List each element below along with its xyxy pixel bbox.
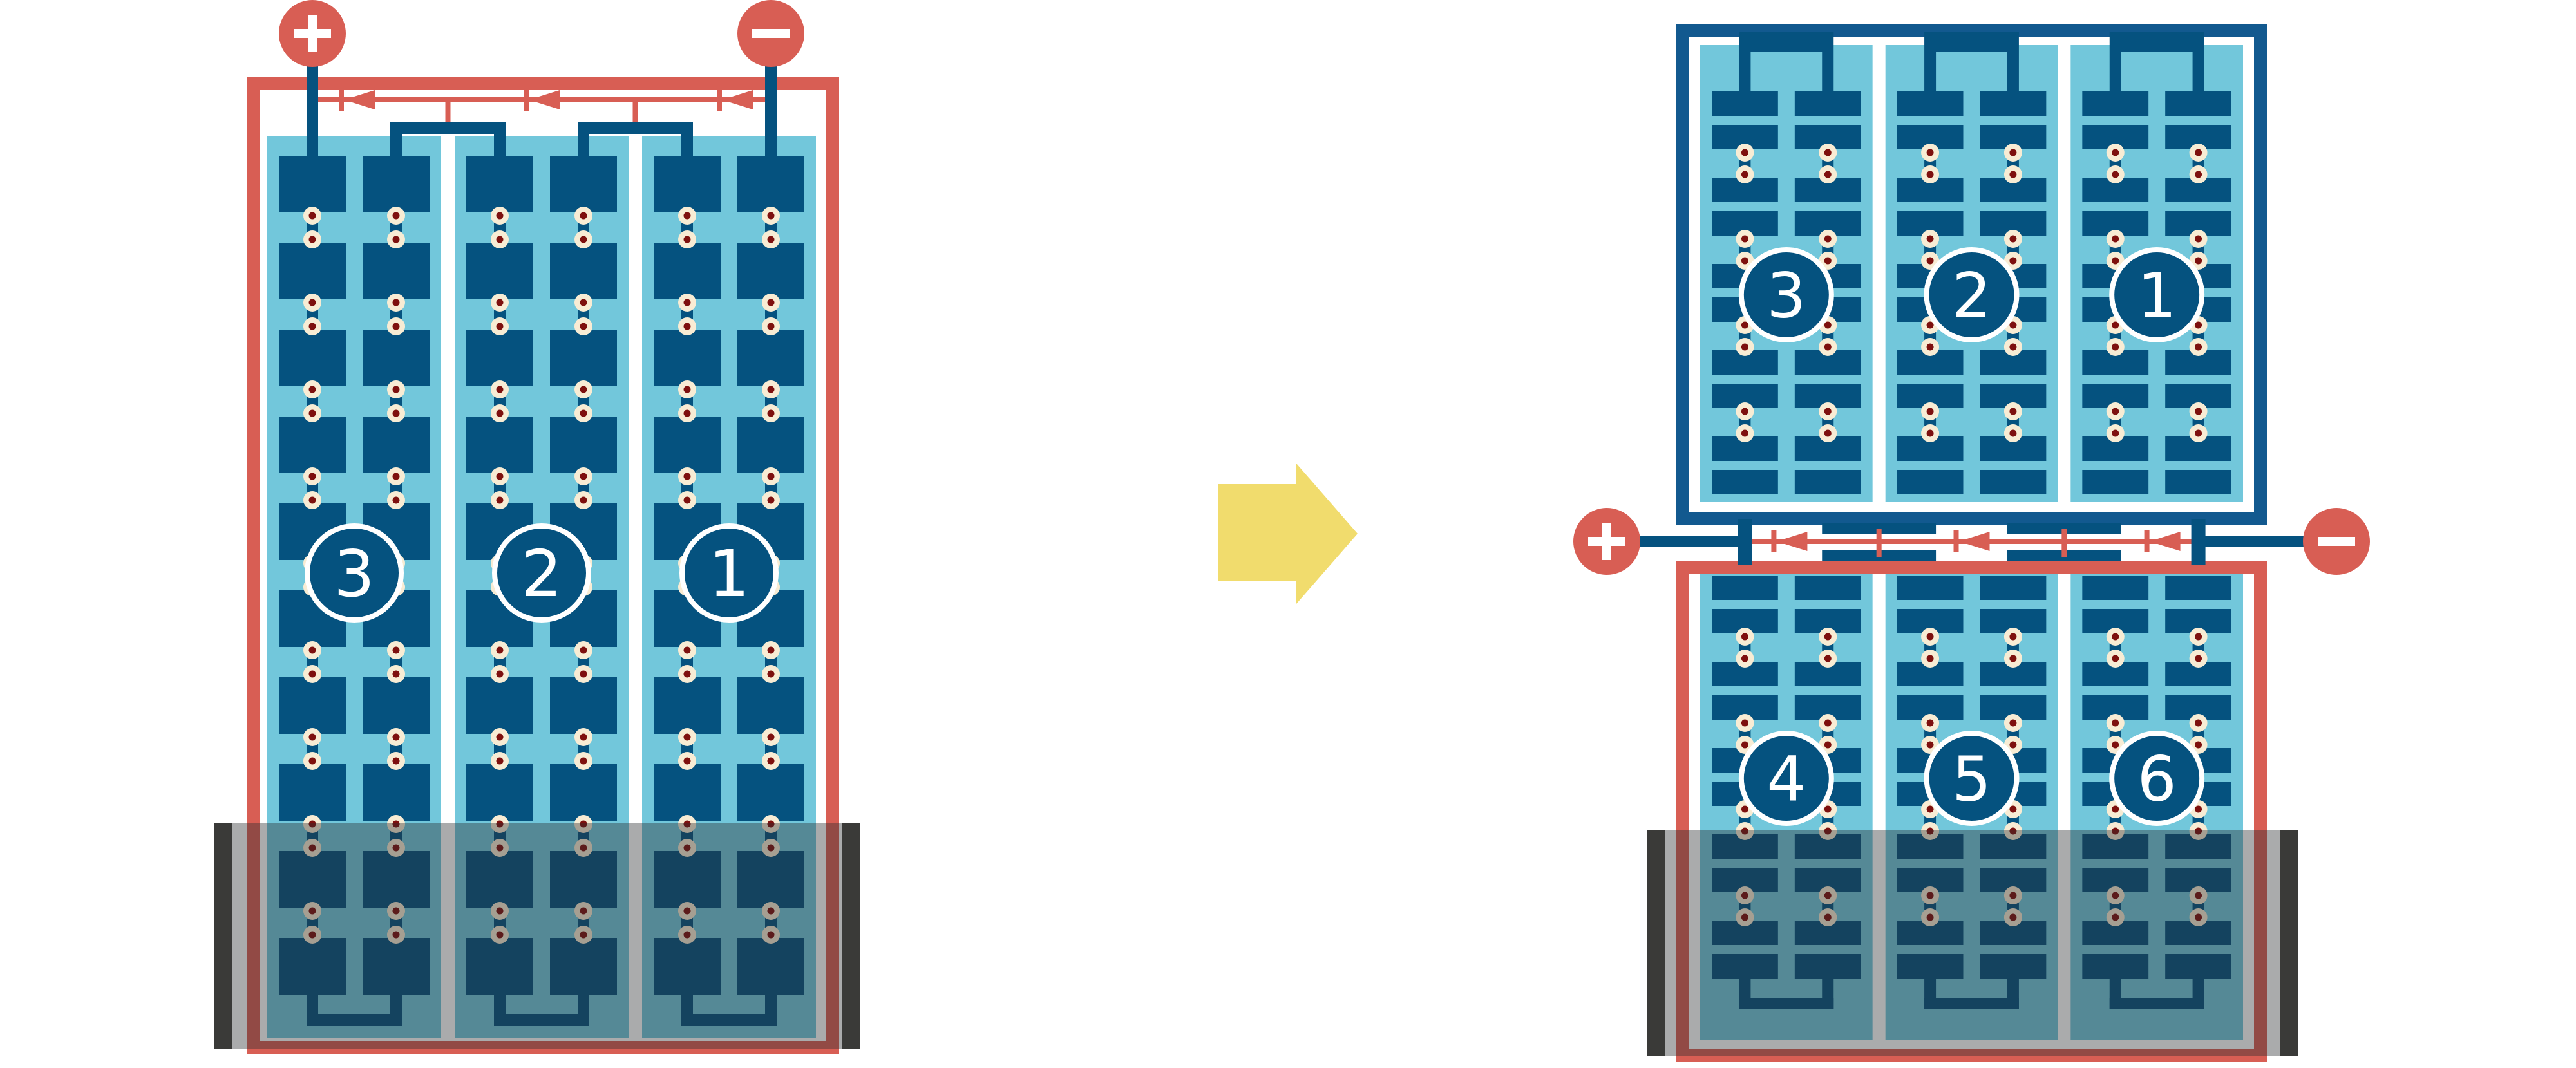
solder-dot-inner — [497, 734, 504, 741]
solder-dot-icon — [387, 467, 405, 485]
solder-dot-inner — [2112, 344, 2119, 351]
solder-dot-inner — [2112, 655, 2119, 662]
jumper-bar — [390, 122, 506, 134]
solder-dot-icon — [1921, 402, 1939, 420]
transform-arrow — [1218, 464, 1358, 604]
solder-dot-icon — [574, 641, 592, 659]
solar-cell — [654, 243, 721, 299]
solder-dot-inner — [2009, 430, 2016, 437]
solder-dot-inner — [309, 236, 316, 243]
bypass-diode-icon — [1771, 530, 1807, 552]
solder-dot-icon — [678, 728, 696, 746]
positive-terminal — [1573, 508, 1640, 575]
negative-terminal — [737, 0, 804, 67]
solder-dot-inner — [1824, 322, 1832, 329]
solder-dot-icon — [1819, 628, 1837, 646]
solder-dot-inner — [1927, 720, 1934, 727]
solder-dot-icon — [1921, 424, 1939, 442]
solder-dot-inner — [2195, 171, 2202, 178]
solder-dot-icon — [2004, 424, 2022, 442]
solder-dot-icon — [491, 380, 509, 398]
solder-dot-icon — [2107, 144, 2125, 162]
solar-cell — [363, 330, 430, 386]
solder-dot-inner — [1741, 149, 1748, 156]
solar-cell — [363, 764, 430, 821]
solar-cell — [550, 764, 617, 821]
solder-dot-icon — [2004, 628, 2022, 646]
solder-dot-icon — [387, 404, 405, 422]
diode-arrow — [1776, 532, 1807, 551]
string-label: 3 — [334, 536, 375, 612]
solder-dot-inner — [684, 758, 691, 765]
jumper-bar — [1739, 32, 1833, 52]
solder-dot-icon — [2107, 230, 2125, 248]
jumper-leg — [2110, 52, 2121, 91]
solder-dot-inner — [497, 212, 504, 220]
shade-tint — [1665, 830, 2280, 1056]
jumper-leg — [494, 134, 506, 157]
solder-dot-icon — [1819, 714, 1837, 732]
solder-dot-inner — [1741, 236, 1748, 243]
diode-arrow — [2150, 532, 2181, 551]
solder-dot-icon — [2004, 338, 2022, 356]
solar-cell — [737, 677, 804, 734]
solder-dot-icon — [574, 230, 592, 248]
string-label: 1 — [708, 536, 750, 612]
solar-cell — [654, 330, 721, 386]
solder-dot-inner — [768, 758, 775, 765]
positive-terminal — [279, 0, 346, 67]
solder-dot-inner — [1824, 236, 1832, 243]
minus-bar — [2318, 537, 2355, 546]
solder-dot-icon — [2190, 338, 2208, 356]
solar-module-wiring-diagram: 321321456 — [0, 0, 2576, 1068]
solder-dot-inner — [393, 236, 400, 243]
solder-dot-icon — [762, 230, 780, 248]
solder-dot-inner — [2009, 408, 2016, 415]
solder-dot-inner — [2009, 742, 2016, 749]
solder-dot-icon — [762, 665, 780, 683]
solar-cell — [550, 677, 617, 734]
solder-dot-inner — [309, 647, 316, 654]
solder-dot-icon — [574, 380, 592, 398]
solder-dot-icon — [387, 752, 405, 770]
solar-cell — [654, 417, 721, 473]
solder-dot-inner — [580, 410, 587, 417]
solder-dot-inner — [393, 497, 400, 504]
solder-dot-icon — [2107, 424, 2125, 442]
string-label-circle: 2 — [495, 526, 589, 620]
solder-dot-icon — [1819, 424, 1837, 442]
solder-dot-inner — [768, 299, 775, 306]
solar-cell-bar — [2165, 91, 2231, 116]
solder-dot-icon — [2107, 165, 2125, 183]
diode-cathode-bar — [1771, 530, 1776, 552]
solder-dot-icon — [1736, 628, 1754, 646]
solder-dot-inner — [1927, 655, 1934, 662]
solder-dot-inner — [2112, 236, 2119, 243]
plus-v-bar — [308, 15, 317, 52]
bypass-diode-icon — [717, 89, 753, 111]
solder-dot-icon — [2004, 650, 2022, 668]
string-label: 3 — [1766, 260, 1806, 332]
solder-dot-inner — [1824, 171, 1832, 178]
solder-dot-icon — [2107, 338, 2125, 356]
shade-end-bar — [2280, 830, 2298, 1056]
diode-tap-wire — [1877, 529, 1882, 557]
solder-dot-icon — [2004, 402, 2022, 420]
solder-dot-inner — [2195, 258, 2202, 265]
solder-dot-icon — [762, 294, 780, 312]
solder-dot-inner — [768, 734, 775, 741]
solder-dot-icon — [678, 207, 696, 225]
solar-cell-bar — [1897, 576, 1964, 600]
solder-dot-inner — [580, 386, 587, 393]
solder-dot-inner — [1927, 171, 1934, 178]
string-label-circle: 1 — [682, 526, 776, 620]
solder-dot-icon — [2107, 402, 2125, 420]
solar-cell — [550, 417, 617, 473]
solder-dot-icon — [574, 467, 592, 485]
solder-dot-inner — [2009, 633, 2016, 641]
jumper-leg — [2193, 52, 2204, 91]
solder-dot-icon — [1921, 650, 1939, 668]
solder-dot-icon — [1736, 144, 1754, 162]
solder-dot-inner — [497, 299, 504, 306]
jumper-leg — [2007, 52, 2019, 91]
solar-cell — [737, 243, 804, 299]
solar-cell-bar — [1795, 470, 1861, 494]
solder-dot-icon — [1921, 144, 1939, 162]
solder-dot-icon — [491, 294, 509, 312]
solder-dot-icon — [1819, 402, 1837, 420]
solder-dot-icon — [574, 404, 592, 422]
solar-cell — [363, 243, 430, 299]
shade-overlay — [1647, 830, 2298, 1056]
minus-icon — [2318, 537, 2355, 546]
solder-dot-icon — [303, 294, 321, 312]
solder-dot-inner — [1741, 806, 1748, 813]
solar-cell — [550, 330, 617, 386]
solder-dot-icon — [2190, 230, 2208, 248]
solder-dot-icon — [387, 230, 405, 248]
solder-dot-inner — [580, 473, 587, 480]
solder-dot-inner — [2112, 408, 2119, 415]
solder-dot-inner — [2009, 258, 2016, 265]
solder-dot-icon — [303, 491, 321, 509]
solder-dot-inner — [497, 473, 504, 480]
solder-dot-inner — [309, 212, 316, 220]
diode-arrow — [344, 90, 375, 109]
solder-dot-icon — [1736, 165, 1754, 183]
solder-dot-inner — [309, 323, 316, 330]
solder-dot-icon — [2190, 144, 2208, 162]
jumper-leg — [1739, 52, 1750, 91]
solder-dot-inner — [1741, 258, 1748, 265]
solder-dot-inner — [2195, 633, 2202, 641]
solder-dot-icon — [2107, 650, 2125, 668]
solder-dot-icon — [387, 641, 405, 659]
solar-cell — [279, 764, 346, 821]
solar-cell-bar — [2165, 576, 2231, 600]
solar-cell-bar — [1712, 576, 1778, 600]
solder-dot-inner — [393, 212, 400, 220]
solder-dot-icon — [387, 491, 405, 509]
solder-dot-inner — [2009, 344, 2016, 351]
solder-dot-inner — [2009, 149, 2016, 156]
solder-dot-icon — [678, 230, 696, 248]
solder-dot-inner — [2195, 149, 2202, 156]
bypass-diode-icon — [524, 89, 560, 111]
solder-dot-icon — [574, 491, 592, 509]
solar-cell — [654, 677, 721, 734]
solder-dot-inner — [684, 323, 691, 330]
solder-dot-inner — [393, 473, 400, 480]
solder-dot-inner — [1824, 742, 1832, 749]
solder-dot-icon — [491, 230, 509, 248]
solder-dot-icon — [387, 380, 405, 398]
solder-dot-icon — [1819, 650, 1837, 668]
bypass-diode-icon — [1954, 530, 1990, 552]
solder-dot-icon — [1736, 424, 1754, 442]
solar-cell — [279, 156, 346, 212]
solder-dot-inner — [2009, 720, 2016, 727]
solder-dot-inner — [1741, 633, 1748, 641]
solder-dot-icon — [491, 752, 509, 770]
solder-dot-icon — [1921, 338, 1939, 356]
solder-dot-inner — [1741, 344, 1748, 351]
solder-dot-icon — [2004, 230, 2022, 248]
solder-dot-icon — [303, 207, 321, 225]
solder-dot-inner — [1927, 742, 1934, 749]
solder-dot-icon — [1819, 144, 1837, 162]
solder-dot-inner — [2009, 322, 2016, 329]
solder-dot-icon — [491, 641, 509, 659]
solder-dot-icon — [303, 404, 321, 422]
jumper-leg — [681, 134, 693, 157]
solder-dot-inner — [580, 497, 587, 504]
solder-dot-inner — [309, 671, 316, 678]
solar-cell-bar — [1795, 576, 1861, 600]
diode-arrow — [1959, 532, 1990, 551]
solar-cell-bar — [1712, 470, 1778, 494]
solder-dot-icon — [1736, 650, 1754, 668]
diode-arrow — [529, 90, 560, 109]
solar-cell — [466, 243, 533, 299]
left-module: 321 — [214, 0, 860, 1049]
plus-v-bar — [1602, 523, 1611, 560]
solder-dot-inner — [2195, 430, 2202, 437]
diode-cathode-bar — [339, 89, 344, 111]
solder-dot-inner — [1927, 258, 1934, 265]
solder-dot-icon — [303, 641, 321, 659]
solder-dot-icon — [762, 467, 780, 485]
solder-dot-inner — [1824, 430, 1832, 437]
solder-dot-inner — [768, 323, 775, 330]
solder-dot-icon — [387, 665, 405, 683]
solder-dot-icon — [1736, 402, 1754, 420]
solder-dot-inner — [2112, 806, 2119, 813]
solder-dot-inner — [309, 758, 316, 765]
diode-cathode-bar — [2145, 530, 2150, 552]
diode-cathode-bar — [717, 89, 722, 111]
jumper-leg — [1924, 52, 1936, 91]
solar-cell — [737, 417, 804, 473]
solder-dot-icon — [2190, 424, 2208, 442]
solder-dot-inner — [1824, 720, 1832, 727]
solder-dot-inner — [2112, 633, 2119, 641]
negative-terminal — [2303, 508, 2370, 575]
jumper-bar — [1924, 32, 2019, 52]
solder-dot-icon — [1921, 165, 1939, 183]
solar-cell-bar — [2082, 470, 2148, 494]
solder-dot-inner — [497, 671, 504, 678]
solar-cell — [466, 764, 533, 821]
solar-cell — [466, 330, 533, 386]
solder-dot-icon — [574, 728, 592, 746]
solder-dot-inner — [309, 410, 316, 417]
solder-dot-inner — [2112, 430, 2119, 437]
solder-dot-inner — [684, 386, 691, 393]
solar-cell — [363, 156, 430, 212]
string-label: 6 — [2137, 744, 2177, 816]
minus-bar — [752, 29, 790, 38]
solder-dot-inner — [2195, 344, 2202, 351]
right-arrow-icon — [1218, 464, 1358, 604]
solder-dot-inner — [768, 647, 775, 654]
solar-cell-bar — [1795, 91, 1861, 116]
string-label: 2 — [521, 536, 562, 612]
solder-dot-icon — [574, 207, 592, 225]
diode-tap-wire — [446, 102, 451, 124]
solder-dot-inner — [309, 734, 316, 741]
string-label: 4 — [1766, 744, 1806, 816]
solar-cell-bar — [2082, 576, 2148, 600]
diode-arrow — [722, 90, 753, 109]
solder-dot-inner — [497, 410, 504, 417]
solder-dot-inner — [2009, 236, 2016, 243]
solder-dot-icon — [678, 404, 696, 422]
string-label-circle: 3 — [1741, 250, 1832, 340]
solder-dot-icon — [303, 728, 321, 746]
solder-dot-icon — [762, 641, 780, 659]
solar-cell — [466, 677, 533, 734]
solder-dot-icon — [762, 317, 780, 335]
solder-dot-inner — [684, 671, 691, 678]
solder-dot-inner — [1741, 655, 1748, 662]
solar-cell — [737, 156, 804, 212]
solder-dot-inner — [309, 497, 316, 504]
solder-dot-icon — [2190, 714, 2208, 732]
solder-dot-icon — [1736, 714, 1754, 732]
shade-overlay — [214, 823, 860, 1049]
solder-dot-inner — [2112, 149, 2119, 156]
solder-dot-icon — [491, 728, 509, 746]
jumper-leg — [578, 134, 589, 157]
solder-dot-icon — [387, 207, 405, 225]
solder-dot-inner — [2112, 171, 2119, 178]
shade-end-bar — [842, 823, 860, 1049]
solder-dot-inner — [393, 299, 400, 306]
solder-dot-icon — [2190, 165, 2208, 183]
solder-dot-inner — [2009, 806, 2016, 813]
solder-dot-inner — [1927, 149, 1934, 156]
solder-dot-icon — [762, 491, 780, 509]
solder-dot-icon — [678, 491, 696, 509]
solder-dot-icon — [491, 207, 509, 225]
solder-dot-inner — [768, 212, 775, 220]
solder-dot-inner — [580, 212, 587, 220]
solder-dot-icon — [678, 380, 696, 398]
solder-dot-inner — [684, 647, 691, 654]
string-label-circle: 1 — [2112, 250, 2202, 340]
solder-dot-icon — [762, 752, 780, 770]
solder-dot-inner — [309, 473, 316, 480]
solder-dot-inner — [684, 473, 691, 480]
solder-dot-inner — [580, 299, 587, 306]
solder-dot-icon — [491, 467, 509, 485]
solder-dot-icon — [762, 207, 780, 225]
solder-dot-icon — [678, 467, 696, 485]
solder-dot-icon — [303, 230, 321, 248]
solder-dot-inner — [580, 323, 587, 330]
solar-cell — [550, 156, 617, 212]
solar-cell — [363, 677, 430, 734]
solder-dot-icon — [2107, 628, 2125, 646]
bypass-diode-icon — [339, 89, 375, 111]
solder-dot-inner — [1741, 408, 1748, 415]
diode-tap-wire — [2061, 529, 2067, 557]
solder-dot-inner — [684, 299, 691, 306]
jumper-bar — [578, 122, 693, 134]
solder-dot-inner — [2009, 171, 2016, 178]
solder-dot-icon — [1921, 628, 1939, 646]
solder-dot-inner — [497, 236, 504, 243]
solder-dot-icon — [1921, 714, 1939, 732]
jumper-leg — [1822, 52, 1833, 91]
solar-cell-bar — [2082, 91, 2148, 116]
solder-dot-icon — [1819, 165, 1837, 183]
solar-cell — [363, 417, 430, 473]
solar-cell — [279, 330, 346, 386]
solder-dot-icon — [303, 317, 321, 335]
solder-dot-icon — [574, 752, 592, 770]
solder-dot-icon — [574, 317, 592, 335]
solder-dot-inner — [684, 497, 691, 504]
solder-dot-icon — [303, 665, 321, 683]
solder-dot-inner — [309, 386, 316, 393]
solder-dot-inner — [2009, 655, 2016, 662]
solder-dot-icon — [1819, 338, 1837, 356]
solder-dot-inner — [393, 410, 400, 417]
string-label-circle: 3 — [307, 526, 401, 620]
solder-dot-icon — [574, 294, 592, 312]
solder-dot-inner — [2195, 720, 2202, 727]
solar-cell — [279, 243, 346, 299]
solder-dot-icon — [762, 380, 780, 398]
solder-dot-inner — [2195, 655, 2202, 662]
solder-dot-icon — [2004, 165, 2022, 183]
diagram-stage: 321321456 — [0, 0, 2576, 1068]
solder-dot-inner — [580, 758, 587, 765]
solder-dot-inner — [768, 236, 775, 243]
solder-dot-icon — [491, 491, 509, 509]
solar-cell-bar — [1980, 576, 2047, 600]
solder-dot-inner — [393, 734, 400, 741]
solder-dot-icon — [678, 752, 696, 770]
string-label: 1 — [2137, 260, 2177, 332]
solar-cell-bar — [2165, 470, 2231, 494]
